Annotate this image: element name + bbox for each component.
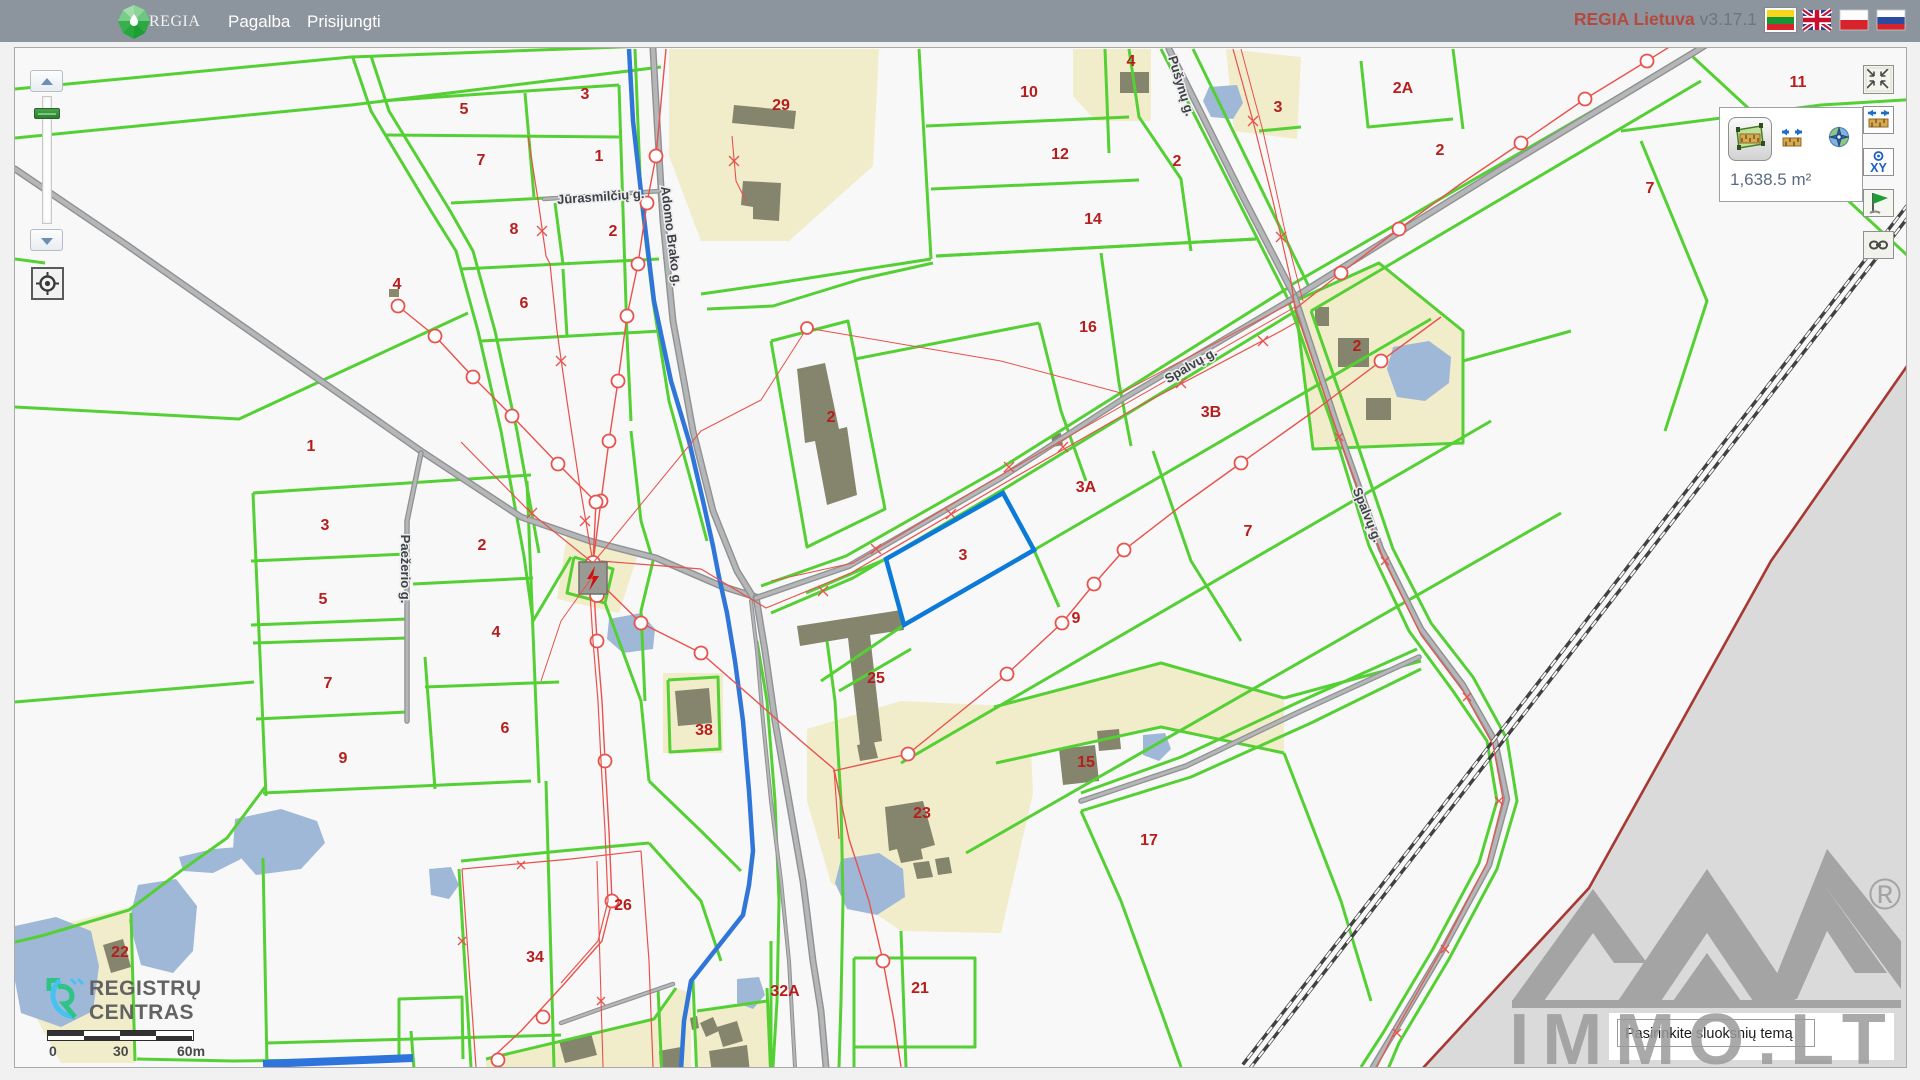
svg-text:Paežerio g.: Paežerio g. [398,535,413,604]
svg-text:9: 9 [339,750,348,767]
svg-text:3B: 3B [1201,404,1221,421]
svg-text:1: 1 [307,438,316,455]
svg-text:38: 38 [695,722,713,739]
svg-text:5: 5 [319,591,328,608]
svg-text:16: 16 [1079,319,1097,336]
svg-text:3: 3 [1274,99,1283,116]
svg-text:32A: 32A [770,983,800,1000]
svg-text:XY: XY [1870,161,1887,175]
svg-text:15: 15 [1077,754,1095,771]
svg-text:29: 29 [772,97,790,114]
svg-text:4: 4 [393,276,402,293]
svg-text:4: 4 [1127,53,1136,70]
svg-text:1: 1 [595,148,604,165]
svg-text:10: 10 [1020,84,1038,101]
svg-text:21: 21 [911,980,929,997]
svg-text:2A: 2A [1393,80,1414,97]
svg-text:2: 2 [1353,338,1362,355]
svg-text:3: 3 [959,547,968,564]
svg-text:3: 3 [321,517,330,534]
svg-text:2: 2 [1436,142,1445,159]
svg-text:2: 2 [478,537,487,554]
svg-text:2: 2 [827,409,836,426]
svg-text:7: 7 [324,675,333,692]
svg-text:23: 23 [913,805,931,822]
svg-text:3A: 3A [1076,479,1097,496]
svg-text:8: 8 [510,221,519,238]
svg-text:17: 17 [1140,832,1158,849]
svg-text:25: 25 [867,670,885,687]
svg-text:9: 9 [1072,610,1081,627]
svg-text:14: 14 [1084,211,1102,228]
svg-text:2: 2 [609,223,618,240]
svg-text:26: 26 [614,897,632,914]
svg-text:2: 2 [1173,153,1182,170]
svg-text:7: 7 [477,152,486,169]
svg-text:5: 5 [460,101,469,118]
svg-text:6: 6 [501,720,510,737]
svg-text:12: 12 [1051,146,1069,163]
svg-text:6: 6 [520,295,529,312]
svg-text:7: 7 [1646,180,1655,197]
svg-text:34: 34 [526,949,544,966]
svg-text:22: 22 [111,944,129,961]
svg-text:4: 4 [492,624,501,641]
svg-text:11: 11 [1790,74,1807,91]
svg-text:3: 3 [581,86,590,103]
svg-text:7: 7 [1244,523,1253,540]
